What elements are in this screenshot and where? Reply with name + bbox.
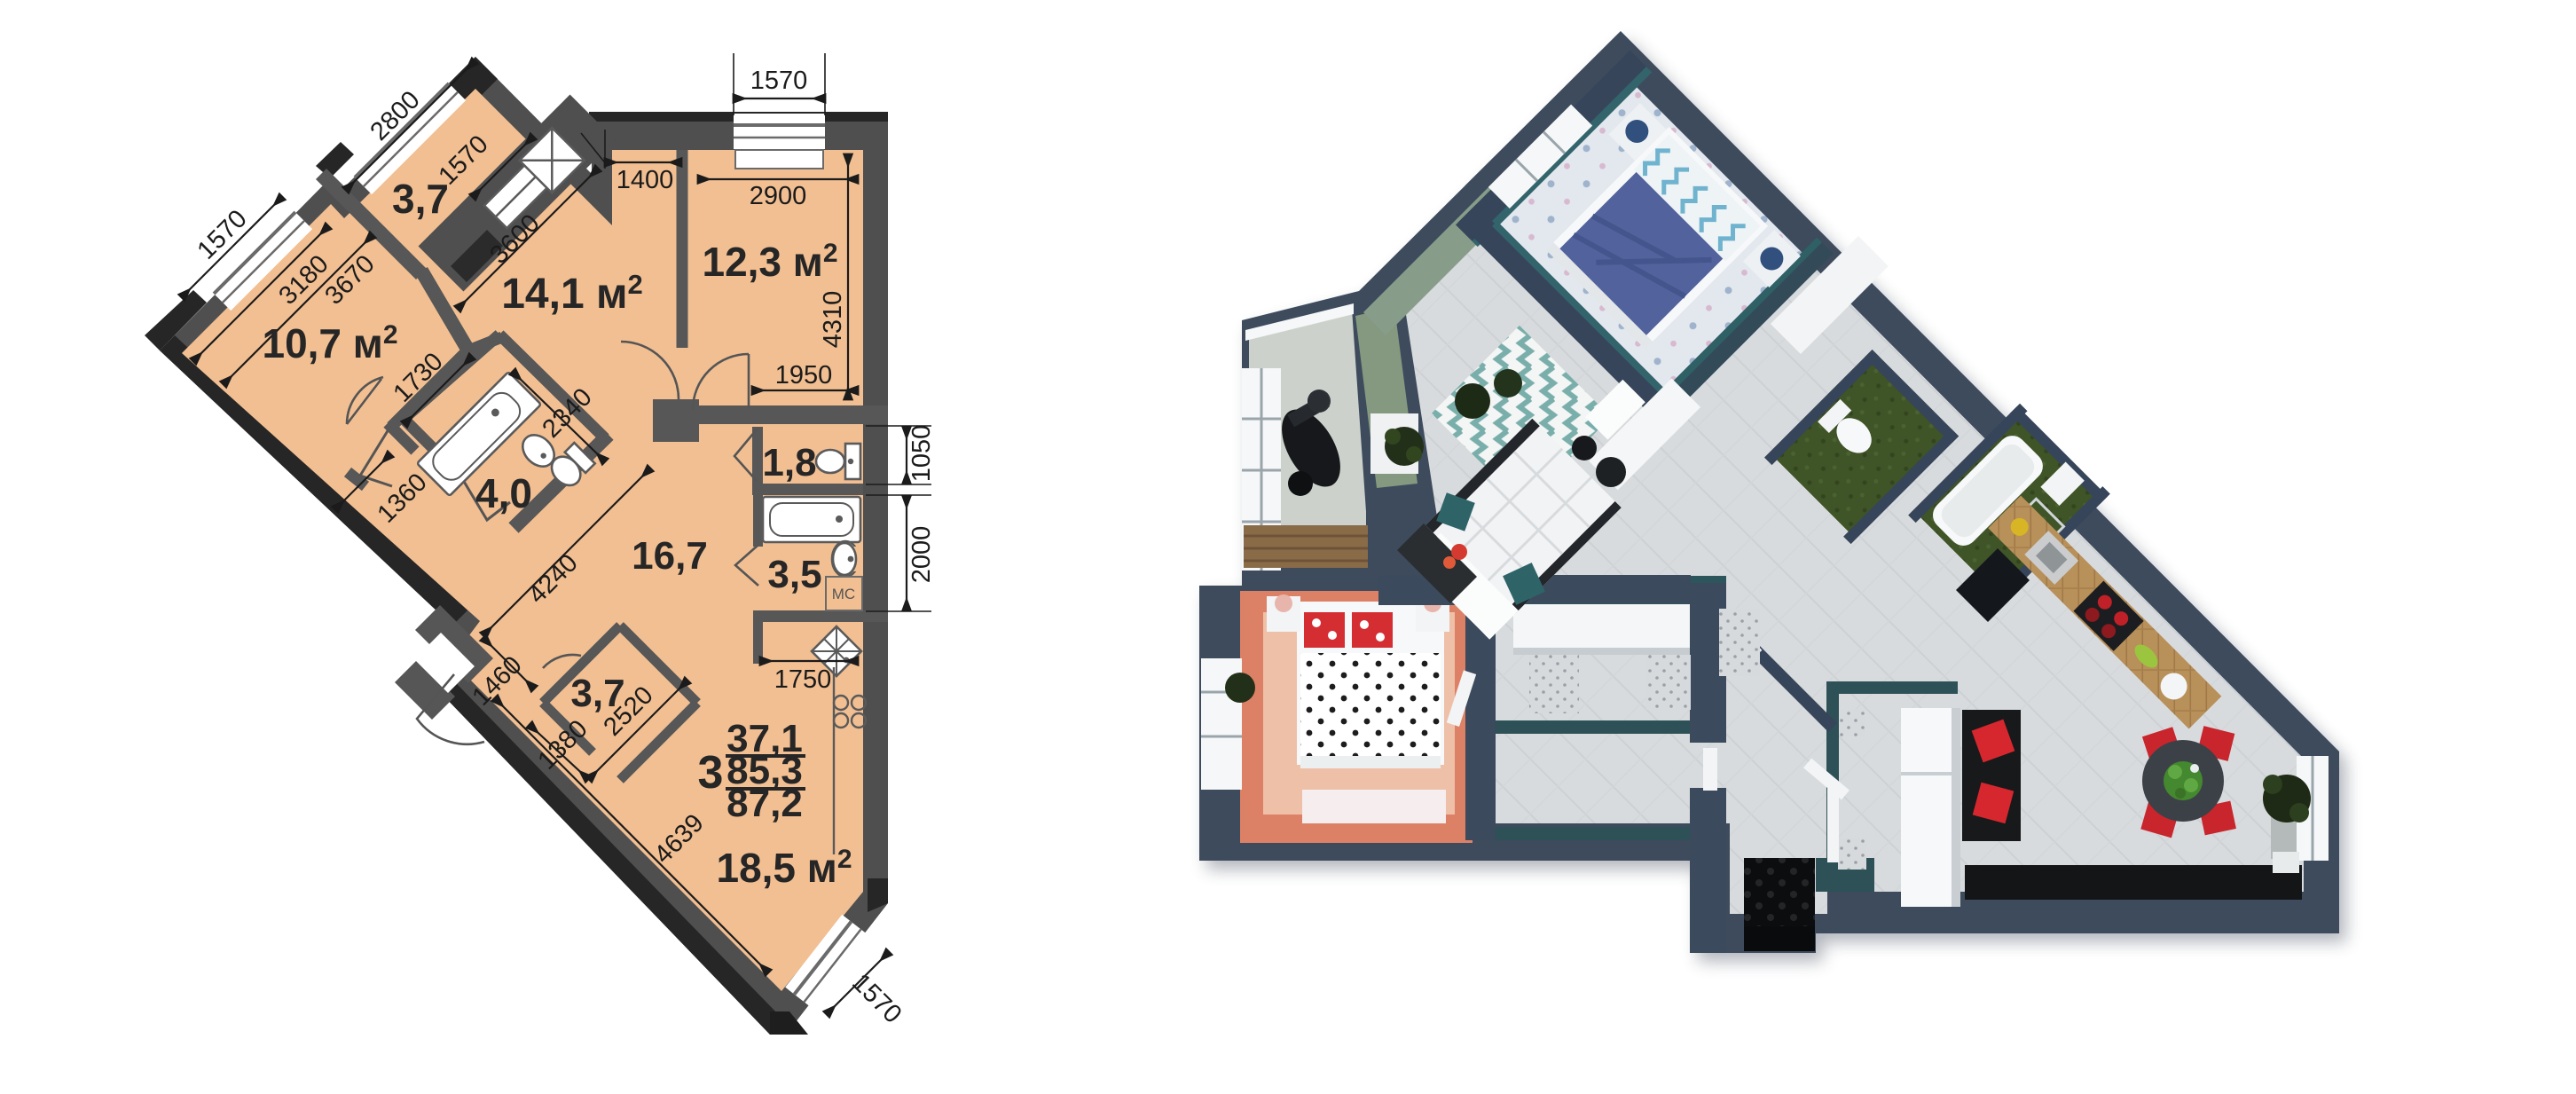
svg-text:1570: 1570 [750, 67, 808, 95]
svg-text:1,8: 1,8 [762, 441, 816, 484]
svg-text:2000: 2000 [907, 526, 936, 584]
svg-text:18,5 м2: 18,5 м2 [716, 845, 852, 891]
svg-text:3,7: 3,7 [570, 672, 624, 715]
svg-text:10,7 м2: 10,7 м2 [262, 320, 397, 366]
svg-text:1050: 1050 [907, 425, 936, 483]
svg-text:2900: 2900 [750, 182, 807, 210]
svg-text:1750: 1750 [774, 665, 832, 694]
svg-text:3,5: 3,5 [767, 553, 821, 596]
svg-text:12,3 м2: 12,3 м2 [702, 239, 837, 285]
svg-text:МС: МС [832, 586, 855, 602]
svg-text:4310: 4310 [819, 291, 847, 349]
svg-text:1400: 1400 [617, 166, 674, 194]
svg-text:1950: 1950 [775, 361, 833, 390]
svg-text:16,7: 16,7 [632, 534, 708, 578]
svg-text:14,1 м2: 14,1 м2 [501, 269, 643, 318]
svg-text:4,0: 4,0 [475, 470, 532, 516]
svg-text:3,7: 3,7 [392, 176, 449, 222]
svg-text:3: 3 [698, 747, 724, 799]
